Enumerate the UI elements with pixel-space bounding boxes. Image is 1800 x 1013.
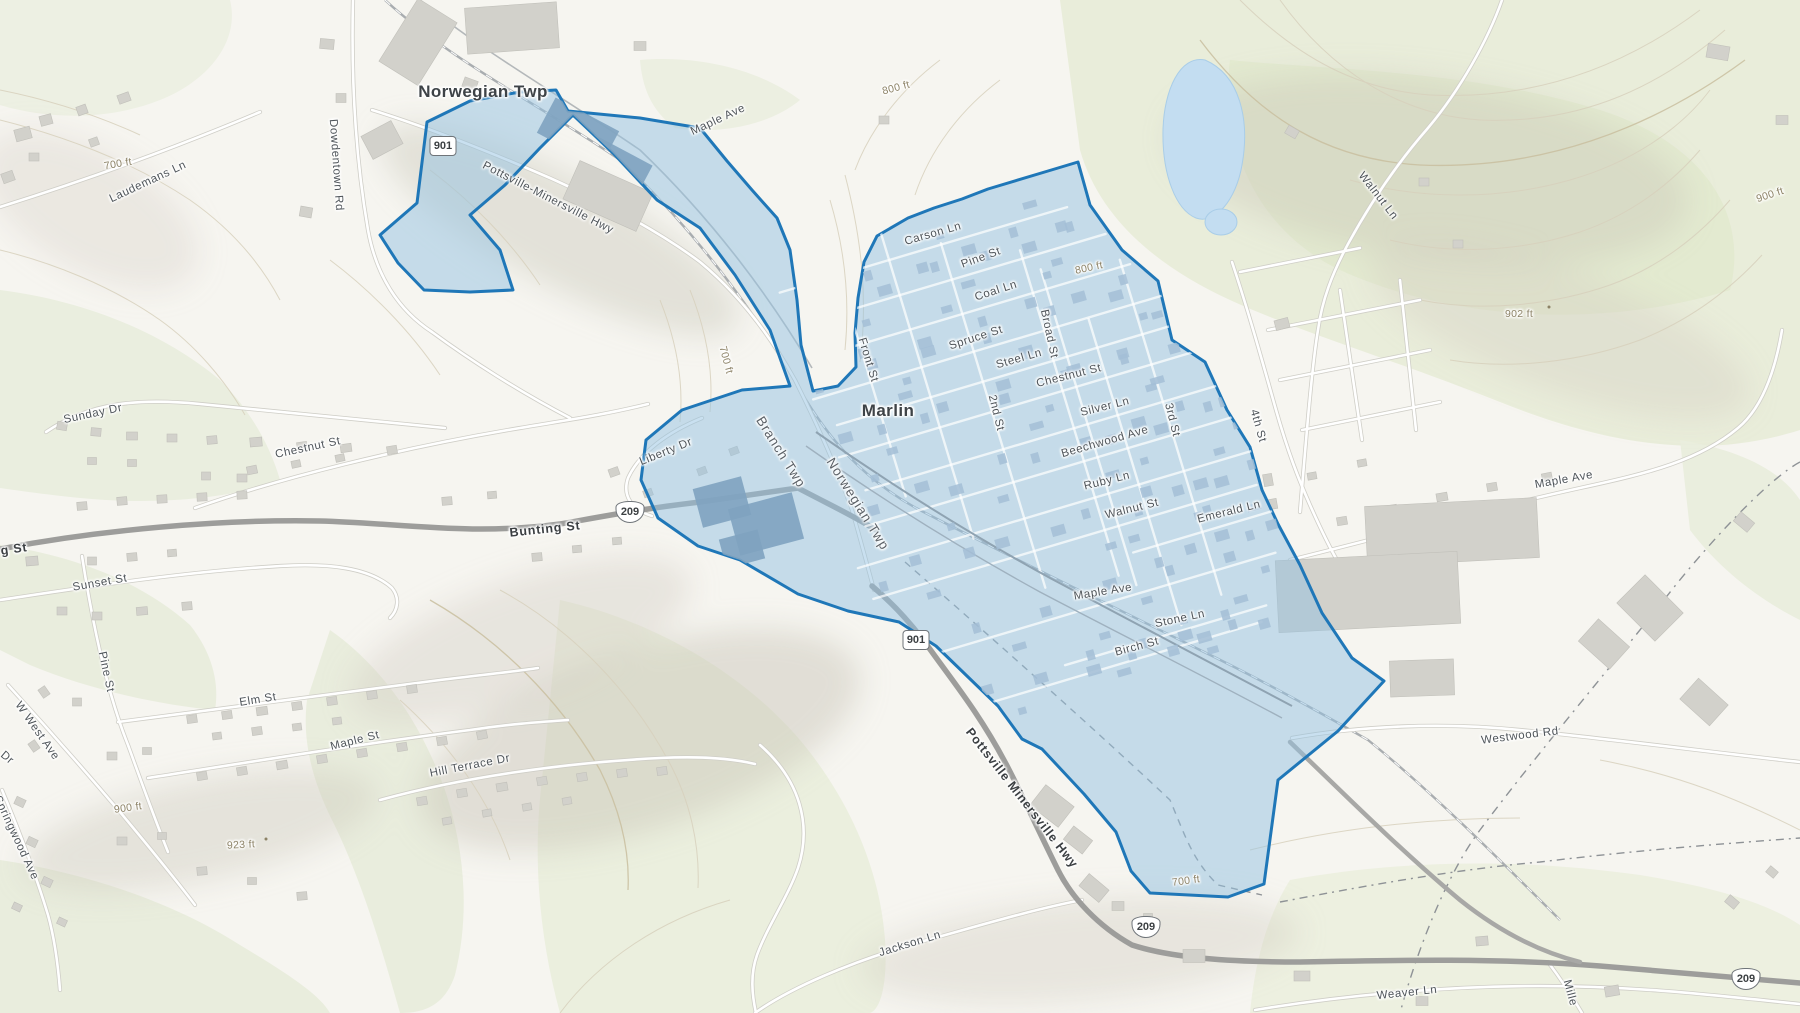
map-base-graphics — [0, 0, 1800, 1013]
small-pond — [1205, 209, 1237, 235]
topographic-map-canvas[interactable]: Norwegian TwpMarlinBranch TwpNorwegian T… — [0, 0, 1800, 1013]
